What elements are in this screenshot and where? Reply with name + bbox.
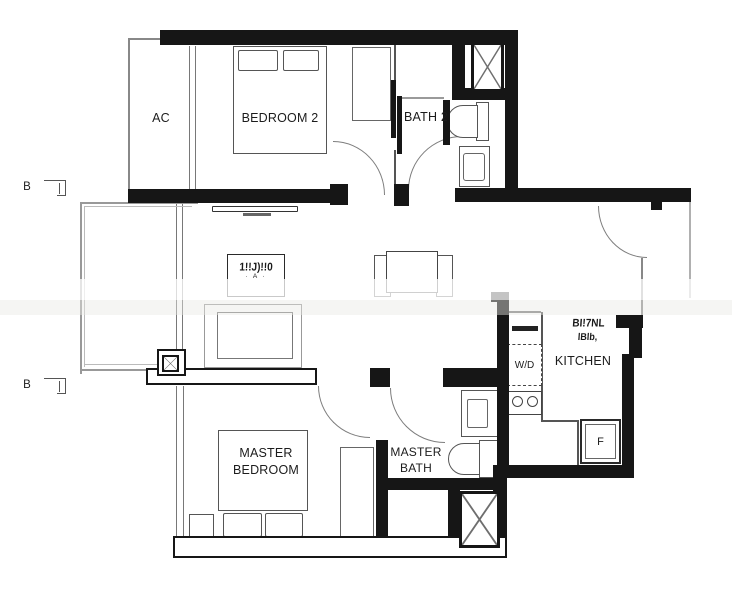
shower-screen-line bbox=[402, 97, 444, 99]
label-master-bedroom-line2: BEDROOM bbox=[211, 462, 321, 479]
ac-ledge-line bbox=[128, 38, 163, 40]
balcony-rail-inner bbox=[84, 206, 192, 207]
bath2-basin bbox=[463, 153, 485, 181]
wall-kitchen-east bbox=[622, 354, 634, 478]
bed2-pillow bbox=[283, 50, 319, 71]
counter-edge bbox=[509, 311, 541, 313]
balcony-rail-inner bbox=[84, 207, 85, 367]
balcony-marker-bottom-label: B bbox=[20, 377, 34, 394]
balcony-rail bbox=[80, 202, 82, 374]
wall-masterbath-north bbox=[443, 368, 503, 387]
washer-dryer-box: W/D bbox=[507, 344, 542, 386]
hob-burner bbox=[527, 396, 538, 407]
bath2-divider-line bbox=[394, 45, 396, 82]
bedroom2-wardrobe bbox=[352, 47, 391, 121]
master-bath-door-arc bbox=[390, 388, 445, 443]
washer-dryer-label: W/D bbox=[515, 360, 534, 371]
entry-door-arc bbox=[598, 206, 647, 258]
kitchen-garbled-line2: lBlb, bbox=[561, 331, 614, 343]
window-living-west bbox=[176, 203, 183, 368]
label-bath2: BATH 2 bbox=[397, 109, 455, 126]
entry-door-leaf bbox=[641, 258, 643, 316]
master-pillow bbox=[265, 513, 303, 537]
label-master-bath-line1: MASTER bbox=[384, 444, 448, 460]
bath2-door-arc bbox=[408, 136, 462, 190]
window-master-west bbox=[176, 386, 184, 536]
column-x-icon bbox=[162, 355, 179, 372]
wall-right-upper bbox=[505, 43, 518, 201]
label-master-bath-line2: BATH bbox=[384, 460, 448, 476]
wall-kitchen-south bbox=[493, 465, 633, 478]
kitchen-garbled-text: BI!7NL lBlb, bbox=[561, 318, 615, 343]
counter-sink-bar bbox=[512, 326, 538, 331]
tv bbox=[212, 206, 298, 212]
balcony-marker-bottom-icon bbox=[44, 378, 66, 394]
corridor-line bbox=[689, 202, 691, 298]
living-seat-inner bbox=[217, 312, 293, 359]
label-ac: AC bbox=[136, 110, 186, 127]
label-master-bath: MASTER BATH bbox=[384, 444, 448, 476]
hob-burner bbox=[512, 396, 523, 407]
balcony-rail-inner bbox=[85, 364, 159, 365]
label-master-bedroom-line1: MASTER bbox=[211, 445, 321, 462]
label-bedroom2: BEDROOM 2 bbox=[225, 110, 335, 127]
wall-kitchen-west bbox=[497, 292, 509, 470]
tv-stand bbox=[243, 213, 271, 216]
shaft-x-icon bbox=[459, 491, 500, 548]
wall-shower-north bbox=[384, 478, 498, 490]
balcony-marker-top-icon bbox=[44, 180, 66, 196]
bed2-pillow bbox=[238, 50, 278, 71]
fridge-box: F bbox=[580, 419, 621, 464]
fridge-label: F bbox=[597, 436, 604, 448]
living-label-garbled-text: 1!!J)!!0 bbox=[228, 261, 285, 273]
dining-table bbox=[386, 251, 438, 293]
master-pillow bbox=[223, 513, 262, 537]
living-label-box: 1!!J)!!0 · A · bbox=[227, 254, 285, 297]
masterbath-toilet-bowl bbox=[448, 443, 480, 475]
scan-gray-band bbox=[0, 300, 732, 315]
counter-edge bbox=[541, 420, 579, 422]
label-master-bedroom: MASTER BEDROOM bbox=[211, 445, 321, 479]
sliding-door-panel bbox=[391, 80, 396, 138]
masterbath-basin bbox=[467, 399, 488, 428]
floor-plan: W/D F 1!!J)!!0 · A · BI!7NL lBlb, B B AC… bbox=[0, 0, 732, 600]
ac-ledge-line bbox=[128, 38, 130, 190]
master-bedroom-door-arc bbox=[318, 386, 370, 438]
wall-kitchen-east-upper bbox=[629, 324, 642, 358]
wall-door-jamb bbox=[330, 184, 348, 205]
dining-chair bbox=[436, 255, 453, 297]
counter-edge bbox=[577, 420, 579, 465]
master-wardrobe bbox=[340, 447, 374, 537]
wall-bedroom2-south bbox=[128, 189, 332, 203]
balcony-marker-top-label: B bbox=[20, 179, 34, 196]
label-kitchen: KITCHEN bbox=[551, 353, 615, 370]
scan-wash-band bbox=[0, 279, 732, 300]
wall-center-jamb bbox=[370, 368, 390, 387]
shaft-x-icon bbox=[471, 42, 504, 92]
wall-door-jamb bbox=[394, 184, 409, 206]
window-ac-bedroom2 bbox=[189, 46, 196, 189]
living-label-garbled-subtext: · A · bbox=[228, 273, 284, 280]
kitchen-garbled-line1: BI!7NL bbox=[562, 318, 615, 331]
wall-bottom bbox=[173, 536, 507, 558]
wall-entry-stop bbox=[651, 200, 662, 210]
